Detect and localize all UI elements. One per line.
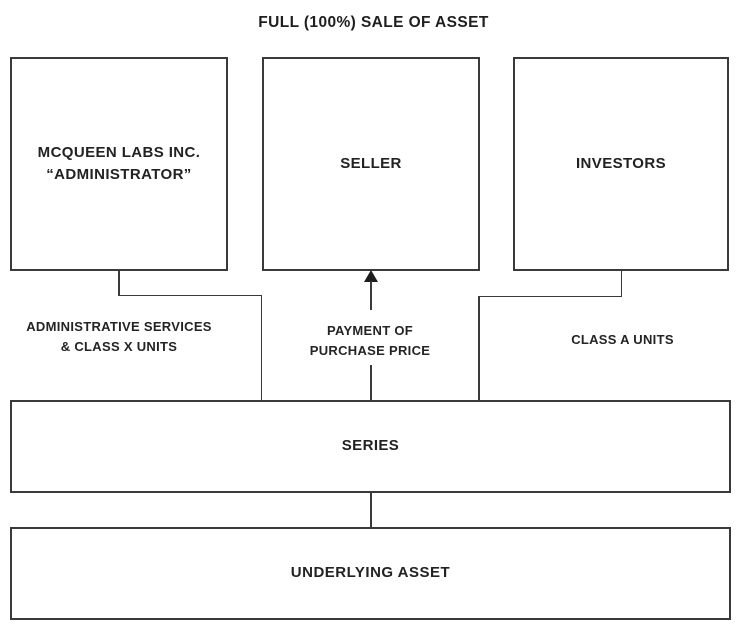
connector-investors-series-segment <box>478 296 480 401</box>
node-investors: INVESTORS <box>513 57 729 271</box>
node-series: SERIES <box>10 400 731 493</box>
node-underlying-asset: UNDERLYING ASSET <box>10 527 731 620</box>
node-investors-name: INVESTORS <box>576 153 666 176</box>
diagram-title: FULL (100%) SALE OF ASSET <box>0 14 747 32</box>
connector-series-underlying-segment <box>370 493 372 527</box>
edge-label-line: CLASS A UNITS <box>545 330 700 350</box>
diagram-canvas: FULL (100%) SALE OF ASSET MCQUEEN LABS I… <box>0 0 747 627</box>
connector-administrator-series-segment <box>118 271 120 296</box>
connector-series-seller-segment <box>370 281 372 310</box>
edge-label-class-a-units: CLASS A UNITS <box>545 330 700 350</box>
connector-investors-series-segment <box>478 296 622 298</box>
edge-label-line: PAYMENT OF <box>296 321 444 341</box>
edge-label-payment: PAYMENT OF PURCHASE PRICE <box>296 321 444 361</box>
connector-series-seller-segment <box>370 365 372 400</box>
connector-investors-series-segment <box>621 271 623 297</box>
edge-label-line: & CLASS X UNITS <box>13 337 225 357</box>
edge-label-line: PURCHASE PRICE <box>296 341 444 361</box>
node-administrator-subtitle: “ADMINISTRATOR” <box>46 164 191 187</box>
node-seller-name: SELLER <box>340 153 402 176</box>
connector-administrator-series-segment <box>118 295 262 297</box>
connector-administrator-series-segment <box>261 295 263 401</box>
node-series-name: SERIES <box>342 435 399 458</box>
node-underlying-asset-name: UNDERLYING ASSET <box>291 562 450 585</box>
edge-label-line: ADMINISTRATIVE SERVICES <box>13 317 225 337</box>
node-administrator-name: MCQUEEN LABS INC. <box>38 142 201 165</box>
node-administrator: MCQUEEN LABS INC. “ADMINISTRATOR” <box>10 57 228 271</box>
node-seller: SELLER <box>262 57 480 271</box>
edge-label-administrative-services: ADMINISTRATIVE SERVICES & CLASS X UNITS <box>13 317 225 357</box>
